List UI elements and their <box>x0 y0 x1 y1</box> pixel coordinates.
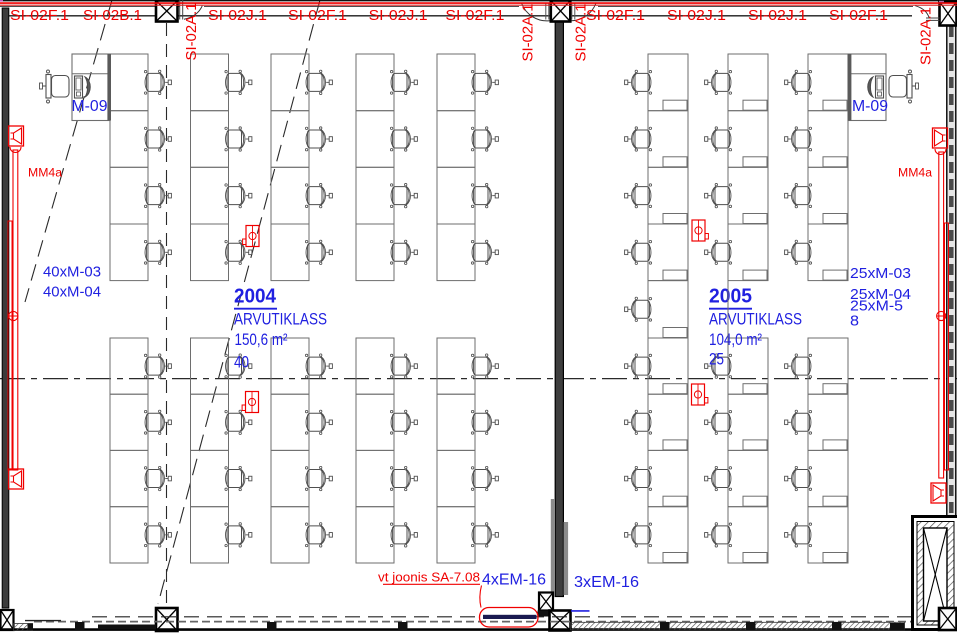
svg-text:SI-02F.1: SI-02F.1 <box>288 7 347 24</box>
svg-text:4xEM-16: 4xEM-16 <box>482 572 546 589</box>
svg-text:40: 40 <box>234 353 249 372</box>
svg-text:2004: 2004 <box>234 285 277 308</box>
svg-text:M-09: M-09 <box>72 98 108 115</box>
svg-text:SI-02F.1: SI-02F.1 <box>445 7 504 24</box>
svg-text:3xEM-16: 3xEM-16 <box>574 574 639 591</box>
svg-text:104,0 m²: 104,0 m² <box>709 330 762 349</box>
svg-text:M-09: M-09 <box>852 98 888 115</box>
svg-text:40xM-03: 40xM-03 <box>43 264 101 281</box>
svg-text:150,6 m²: 150,6 m² <box>235 330 288 349</box>
svg-text:SI-02A.1: SI-02A.1 <box>918 7 935 65</box>
svg-text:SI-02A.1: SI-02A.1 <box>183 3 200 61</box>
svg-text:2005: 2005 <box>709 285 752 308</box>
svg-text:SI-02A.1: SI-02A.1 <box>520 4 537 62</box>
svg-text:SI-02J.1: SI-02J.1 <box>748 7 807 24</box>
svg-text:25: 25 <box>709 350 724 369</box>
svg-text:SI-02F.1: SI-02F.1 <box>829 7 888 24</box>
svg-text:ARVUTIKLASS: ARVUTIKLASS <box>709 310 802 329</box>
svg-text:SI-02J.1: SI-02J.1 <box>208 7 267 24</box>
svg-text:SI-02A.1: SI-02A.1 <box>573 4 590 62</box>
svg-text:40xM-04: 40xM-04 <box>43 284 101 301</box>
svg-text:8: 8 <box>850 313 859 330</box>
svg-text:vt joonis SA-7.08: vt joonis SA-7.08 <box>378 570 480 585</box>
svg-text:SI-02F.1: SI-02F.1 <box>586 7 645 24</box>
svg-text:SI-02B.1: SI-02B.1 <box>83 7 142 24</box>
svg-text:SI-02J.1: SI-02J.1 <box>369 7 428 24</box>
svg-text:SI-02J.1: SI-02J.1 <box>667 7 726 24</box>
svg-text:25xM-03: 25xM-03 <box>850 265 911 282</box>
svg-text:MM4a: MM4a <box>898 168 933 180</box>
svg-text:ARVUTIKLASS: ARVUTIKLASS <box>234 310 327 329</box>
svg-text:SI-02F.1: SI-02F.1 <box>10 7 69 24</box>
svg-text:MM4a: MM4a <box>28 168 63 180</box>
